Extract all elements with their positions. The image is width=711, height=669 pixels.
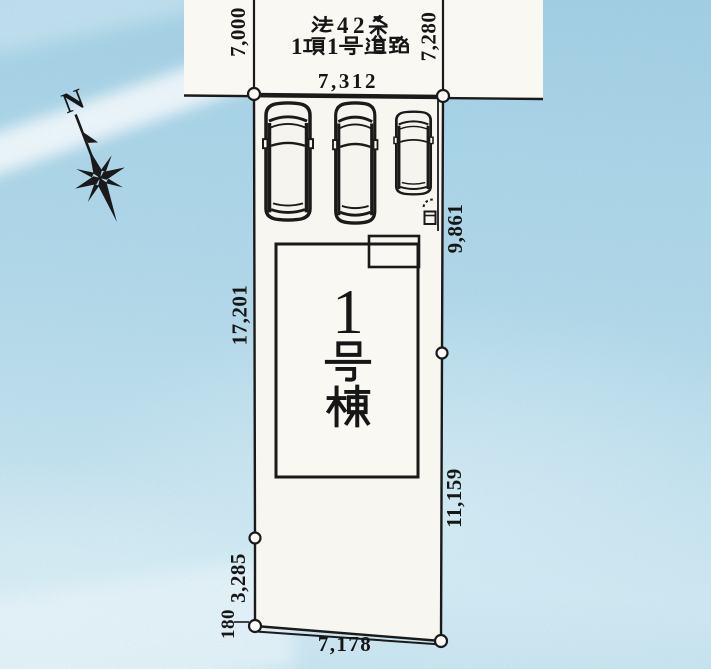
svg-text:1: 1 xyxy=(327,34,339,59)
svg-text:42: 42 xyxy=(337,13,369,38)
svg-text:7,000: 7,000 xyxy=(226,7,250,57)
svg-text:1: 1 xyxy=(291,34,303,59)
svg-text:7,178: 7,178 xyxy=(318,632,372,656)
svg-text:11,159: 11,159 xyxy=(442,468,466,528)
svg-text:9,861: 9,861 xyxy=(443,204,467,254)
svg-text:7,312: 7,312 xyxy=(318,69,378,93)
svg-text:1: 1 xyxy=(332,277,364,347)
svg-text:3,285: 3,285 xyxy=(226,553,250,603)
svg-text:180: 180 xyxy=(218,609,239,639)
svg-text:17,201: 17,201 xyxy=(228,285,252,346)
svg-text:7,280: 7,280 xyxy=(417,12,441,62)
